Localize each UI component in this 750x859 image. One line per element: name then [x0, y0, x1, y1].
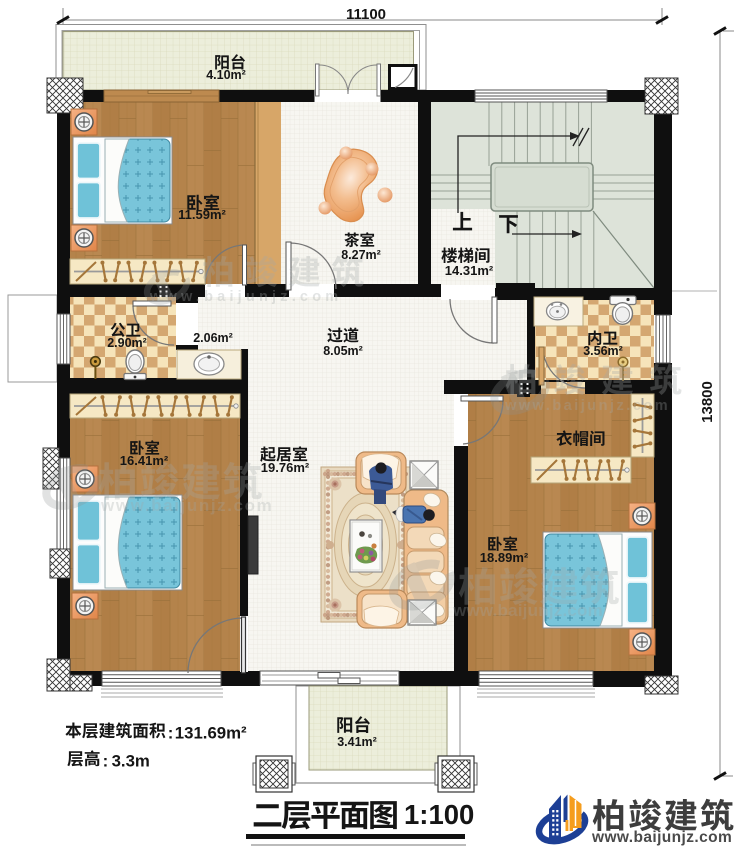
svg-text:11100: 11100 [346, 6, 386, 23]
svg-text:2.90m²: 2.90m² [107, 336, 147, 350]
svg-text:14.31m²: 14.31m² [445, 263, 494, 278]
svg-text:1:100: 1:100 [404, 799, 474, 830]
svg-text:16.41m²: 16.41m² [120, 453, 169, 468]
svg-text:www.baijunjz.com: www.baijunjz.com [100, 496, 273, 515]
svg-text:3.41m²: 3.41m² [337, 735, 377, 749]
svg-text:www.baijunjz.com: www.baijunjz.com [504, 398, 670, 414]
svg-text::: : [103, 752, 109, 771]
svg-text:4.10m²: 4.10m² [206, 68, 246, 82]
svg-text:11.59m²: 11.59m² [178, 207, 226, 222]
svg-text:3.3m: 3.3m [112, 752, 150, 771]
svg-text:13800: 13800 [699, 381, 716, 423]
svg-text:2.06m²: 2.06m² [193, 331, 233, 345]
svg-text:18.89m²: 18.89m² [480, 550, 529, 565]
svg-text:www.baijunjz.com: www.baijunjz.com [149, 289, 342, 305]
svg-text:19.76m²: 19.76m² [261, 460, 310, 475]
svg-text:www.baijunjz.com: www.baijunjz.com [591, 829, 732, 846]
svg-text:www.baijunjz.com: www.baijunjz.com [452, 601, 603, 620]
svg-text::: : [168, 724, 174, 743]
svg-text:8.27m²: 8.27m² [341, 248, 381, 262]
svg-text:8.05m²: 8.05m² [323, 344, 363, 358]
svg-text:3.56m²: 3.56m² [583, 344, 623, 358]
svg-text:131.69m²: 131.69m² [175, 724, 247, 743]
